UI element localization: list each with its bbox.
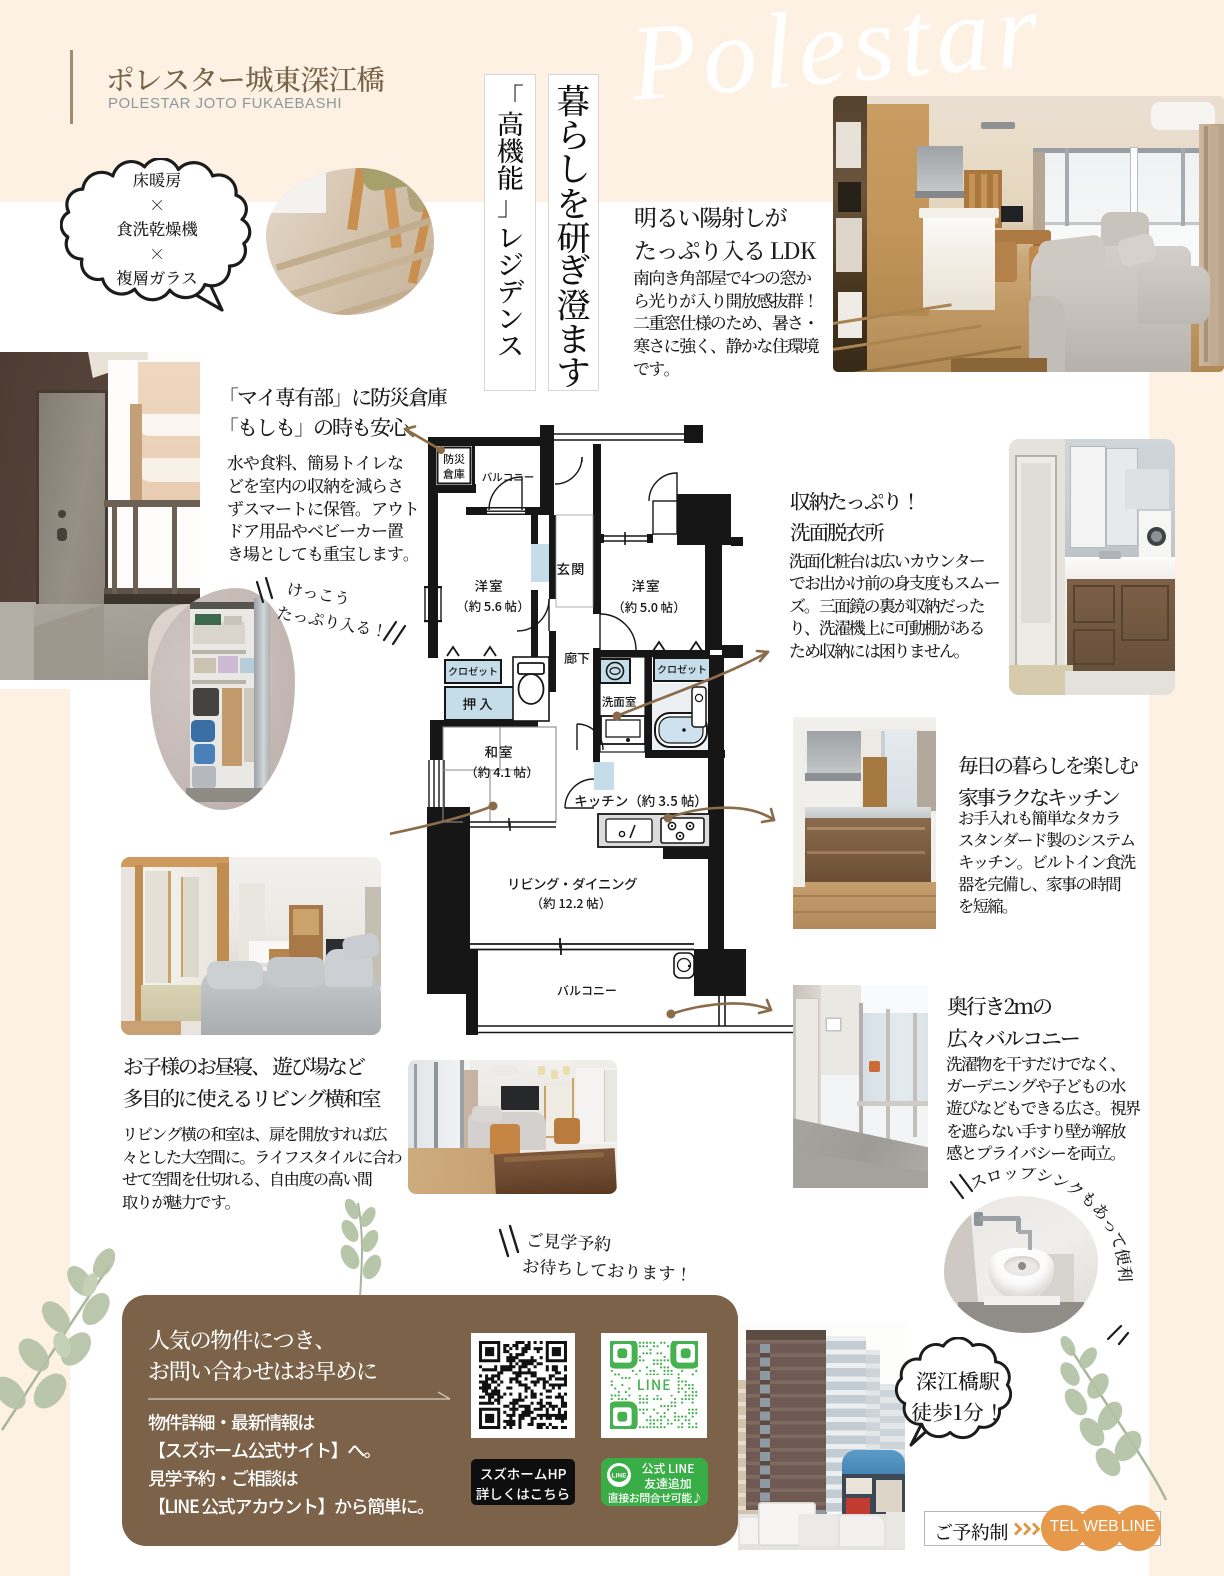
- svg-text:ご見学予約: ご見学予約: [526, 1226, 612, 1255]
- svg-text:リビング・ダイニング: リビング・ダイニング: [507, 873, 638, 893]
- svg-text:洋室: 洋室: [632, 575, 661, 595]
- svg-text:防災: 防災: [443, 451, 465, 467]
- svg-text:（約 12.2 帖）: （約 12.2 帖）: [531, 893, 612, 912]
- svg-text:（約 5.6 帖）: （約 5.6 帖）: [456, 596, 530, 615]
- svg-text:（約 5.0 帖）: （約 5.0 帖）: [612, 597, 686, 616]
- svg-text:（約 4.1 帖）: （約 4.1 帖）: [465, 762, 539, 781]
- svg-text:洋室: 洋室: [475, 575, 504, 595]
- svg-text:スロップシンクもあって便利: スロップシンクもあって便利: [965, 1168, 1135, 1282]
- svg-text:キッチン（約 3.5 帖）: キッチン（約 3.5 帖）: [574, 790, 708, 810]
- svg-text:洗面室: 洗面室: [602, 694, 637, 710]
- svg-text:押入: 押入: [463, 693, 496, 713]
- svg-text:廊下: 廊下: [564, 648, 590, 667]
- svg-text:LINE: LINE: [612, 1473, 627, 1480]
- svg-text:バルコニー: バルコニー: [482, 470, 535, 485]
- svg-text:クロゼット: クロゼット: [657, 661, 707, 676]
- svg-text:お待ちしております！: お待ちしております！: [522, 1252, 692, 1286]
- svg-text:クロゼット: クロゼット: [448, 663, 498, 678]
- svg-text:倉庫: 倉庫: [443, 466, 465, 482]
- svg-text:和室: 和室: [485, 741, 514, 761]
- svg-text:玄関: 玄関: [557, 558, 586, 578]
- svg-text:バルコニー: バルコニー: [557, 982, 617, 999]
